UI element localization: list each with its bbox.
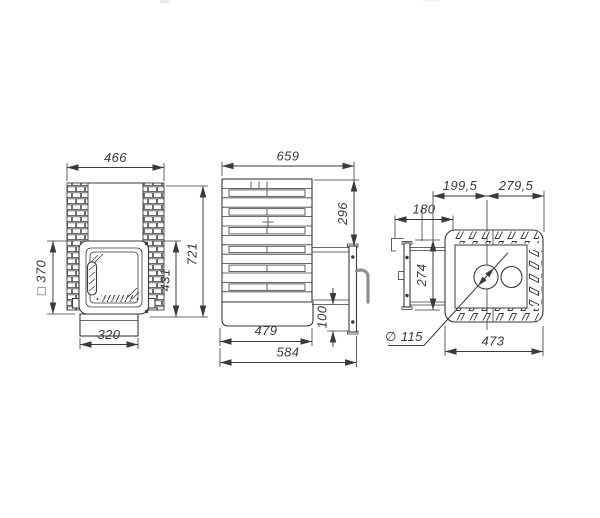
dim-label: 320 [98, 327, 121, 342]
ref-dot [145, 242, 148, 245]
dim-top-flue-to-back: 279,5 [487, 178, 544, 232]
dim-label: 279,5 [498, 178, 534, 193]
dim-top-frame-offset: 180 [395, 202, 453, 239]
scan-artifact [160, 0, 169, 3]
door-handle [357, 270, 369, 302]
dim-label: 659 [277, 149, 300, 164]
dim-label: 296 [335, 202, 350, 226]
ref-dot [351, 255, 354, 258]
dim-label: 199,5 [443, 178, 478, 193]
side-view: 659 296 100 479 584 [220, 149, 368, 368]
door-handle-coil [88, 262, 97, 295]
ref-dot [405, 256, 408, 259]
dim-label: 584 [277, 345, 300, 360]
ref-dot [351, 320, 354, 323]
dim-top-body-width: 473 [445, 326, 543, 356]
mounting-bracket [392, 239, 405, 252]
front-view: 466 □ 370 431 721 320 [34, 150, 209, 349]
dim-side-base-height: 100 [315, 288, 348, 347]
dim-side-depth-with-frame: 584 [220, 336, 357, 367]
vent-dot [97, 298, 99, 300]
scan-artifact [423, 0, 439, 2]
louver-band-top [452, 232, 539, 244]
air-vent [101, 295, 134, 302]
dim-label: ∅ 115 [385, 329, 423, 344]
ref-dot [405, 294, 408, 297]
vent-dot [137, 298, 139, 300]
dim-label: 479 [255, 323, 278, 338]
dim-label: 100 [315, 305, 330, 328]
technical-drawing-page: 466 □ 370 431 721 320 [0, 0, 600, 518]
dim-label: 431 [158, 269, 173, 292]
technical-drawing-canvas: 466 □ 370 431 721 320 [0, 0, 600, 518]
dim-label: 180 [413, 202, 436, 217]
door-frame-plate [349, 246, 357, 332]
dim-label: 274 [414, 264, 429, 288]
dim-label: 721 [185, 243, 200, 266]
dim-label: 473 [482, 334, 505, 349]
ref-dot [145, 310, 148, 313]
secondary-circle [501, 267, 522, 288]
door-tab-left [73, 299, 80, 309]
dim-side-top-to-door: 296 [314, 180, 359, 246]
dim-label: □ 370 [34, 260, 49, 296]
top-view: 199,5 279,5 180 274 ∅ 115 [385, 178, 544, 356]
frame-rails [312, 248, 349, 305]
dim-label: 466 [104, 150, 127, 165]
door-tab-right [149, 299, 156, 309]
dim-front-overall-width: 466 [67, 150, 164, 181]
louver-band-right [529, 250, 542, 306]
louver-band-bottom [452, 309, 539, 321]
